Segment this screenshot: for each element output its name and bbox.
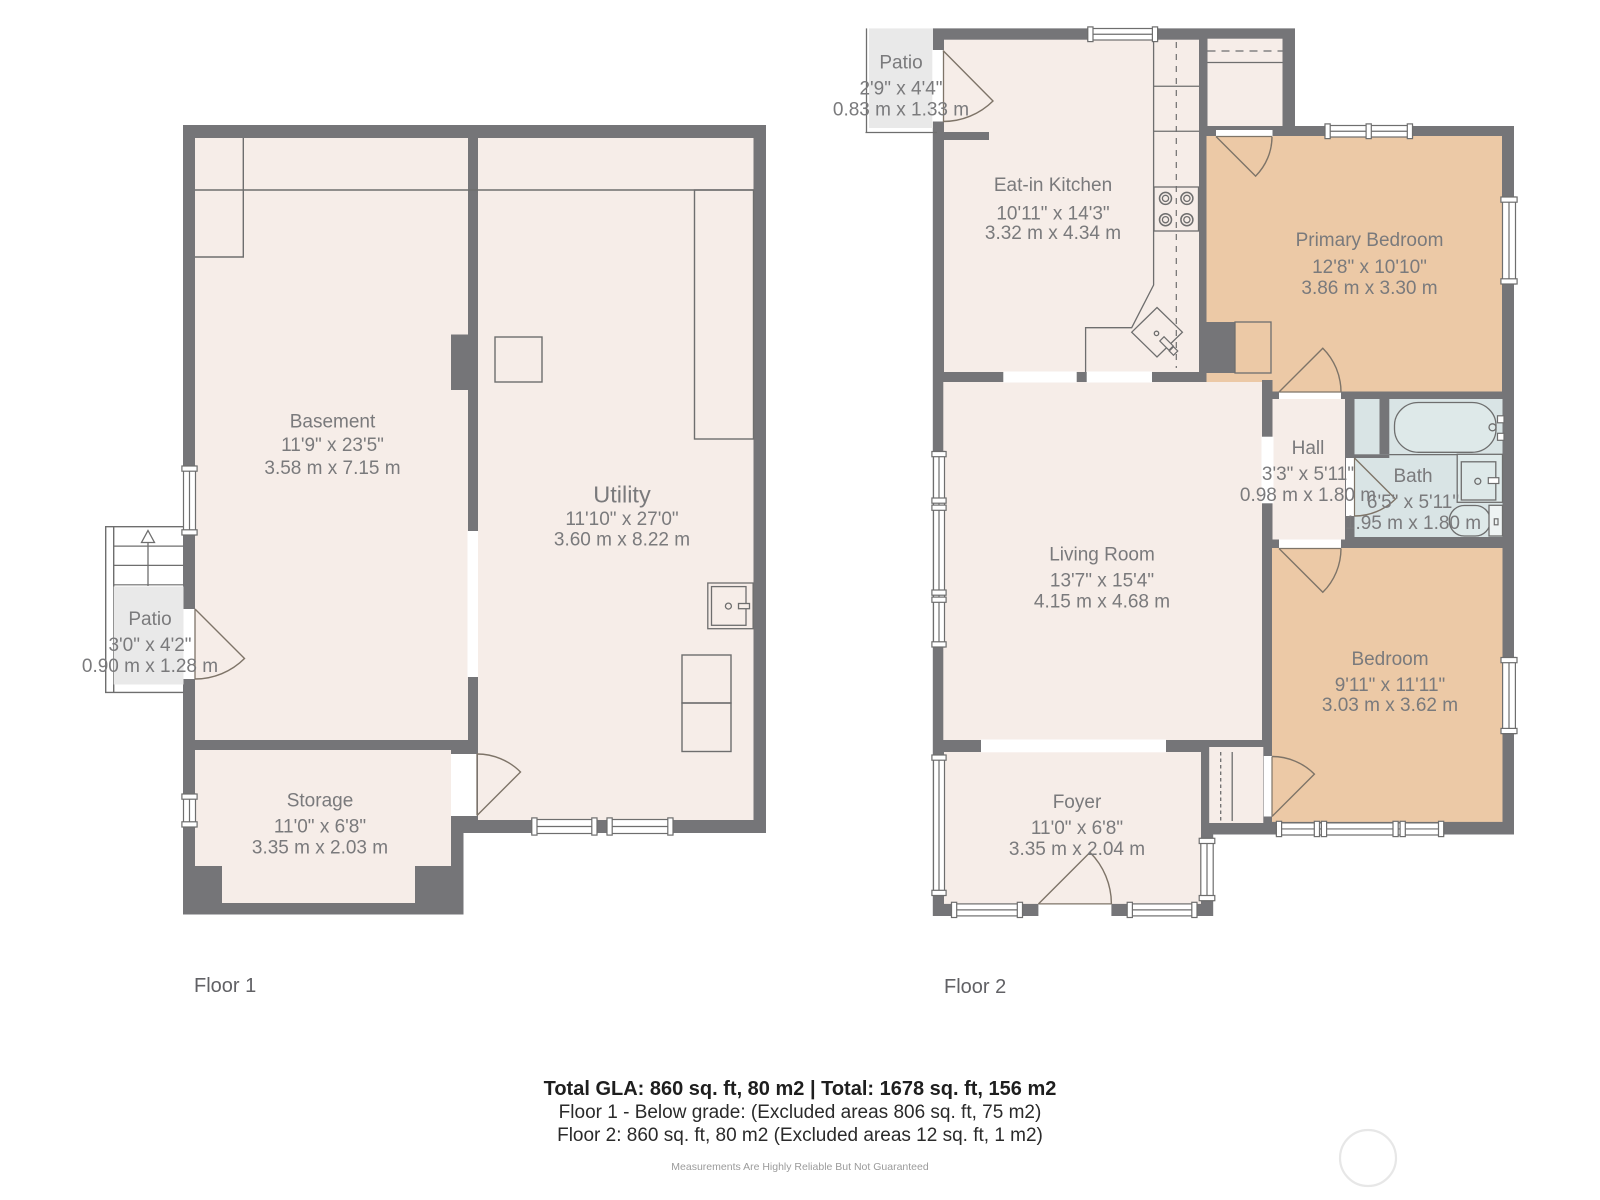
svg-text:Primary Bedroom: Primary Bedroom	[1296, 230, 1444, 251]
svg-text:Floor 2: Floor 2	[944, 976, 1006, 998]
svg-text:0.83 m x 1.33 m: 0.83 m x 1.33 m	[833, 100, 969, 121]
svg-text:11'0" x 6'8": 11'0" x 6'8"	[1031, 818, 1123, 839]
svg-text:Living Room: Living Room	[1049, 545, 1155, 566]
svg-text:Bedroom: Bedroom	[1351, 649, 1428, 670]
svg-text:3.32 m x 4.34 m: 3.32 m x 4.34 m	[985, 223, 1121, 244]
svg-text:Measurements Are Highly Reliab: Measurements Are Highly Reliable But Not…	[671, 1161, 929, 1173]
svg-text:3.86 m x 3.30 m: 3.86 m x 3.30 m	[1301, 278, 1437, 299]
svg-text:Floor 2: 860 sq. ft, 80 m2 (Ex: Floor 2: 860 sq. ft, 80 m2 (Excluded are…	[557, 1125, 1043, 1146]
svg-text:Hall: Hall	[1292, 438, 1325, 459]
svg-text:Floor 1 - Below grade: (Exclud: Floor 1 - Below grade: (Excluded areas 8…	[559, 1102, 1042, 1123]
svg-text:Patio: Patio	[128, 609, 171, 630]
svg-text:11'0" x 6'8": 11'0" x 6'8"	[274, 817, 366, 838]
svg-text:0.90 m x 1.28 m: 0.90 m x 1.28 m	[82, 656, 218, 677]
svg-text:Storage: Storage	[287, 791, 354, 812]
svg-text:0.98 m x 1.80 m: 0.98 m x 1.80 m	[1240, 485, 1376, 506]
svg-text:3.35 m x 2.03 m: 3.35 m x 2.03 m	[252, 838, 388, 859]
svg-text:9'11" x 11'11": 9'11" x 11'11"	[1335, 675, 1446, 696]
svg-text:3'3" x 5'11": 3'3" x 5'11"	[1262, 464, 1354, 485]
svg-text:3.60 m x 8.22 m: 3.60 m x 8.22 m	[554, 530, 690, 551]
svg-text:3.58 m x 7.15 m: 3.58 m x 7.15 m	[264, 458, 400, 479]
svg-text:11'10" x 27'0": 11'10" x 27'0"	[565, 509, 678, 530]
svg-text:11'9" x 23'5": 11'9" x 23'5"	[281, 435, 384, 456]
svg-text:Utility: Utility	[593, 482, 651, 508]
svg-text:Floor 1: Floor 1	[194, 975, 256, 997]
svg-text:4.15 m x 4.68 m: 4.15 m x 4.68 m	[1034, 592, 1170, 613]
svg-text:1.95 m x 1.80 m: 1.95 m x 1.80 m	[1345, 513, 1481, 534]
svg-text:Basement: Basement	[290, 412, 376, 433]
svg-text:12'8" x 10'10": 12'8" x 10'10"	[1312, 257, 1427, 278]
svg-text:Bath: Bath	[1393, 466, 1432, 487]
svg-text:13'7" x 15'4": 13'7" x 15'4"	[1050, 571, 1154, 592]
svg-text:Total GLA: 860 sq. ft, 80 m2 |: Total GLA: 860 sq. ft, 80 m2 | Total: 16…	[544, 1078, 1057, 1100]
svg-text:3'0" x 4'2": 3'0" x 4'2"	[108, 635, 191, 656]
svg-text:6'5" x 5'11": 6'5" x 5'11"	[1367, 492, 1459, 513]
svg-text:10'11" x 14'3": 10'11" x 14'3"	[996, 204, 1109, 225]
svg-text:3.03 m x 3.62 m: 3.03 m x 3.62 m	[1322, 695, 1458, 716]
svg-text:Patio: Patio	[879, 53, 922, 74]
svg-text:2'9" x 4'4": 2'9" x 4'4"	[859, 79, 942, 100]
svg-text:Foyer: Foyer	[1053, 792, 1102, 813]
svg-text:Eat-in Kitchen: Eat-in Kitchen	[994, 175, 1112, 196]
svg-text:3.35 m x 2.04 m: 3.35 m x 2.04 m	[1009, 839, 1145, 860]
